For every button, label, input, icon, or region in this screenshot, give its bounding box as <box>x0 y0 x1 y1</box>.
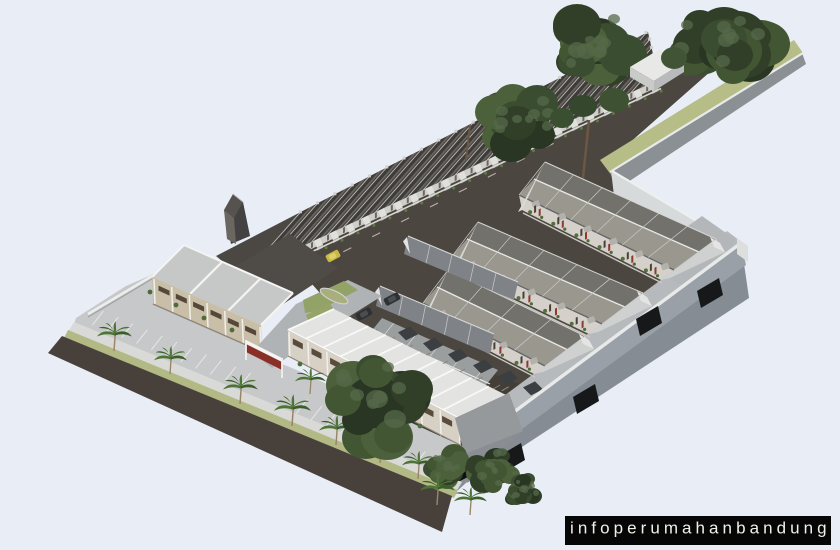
svg-text:infoperumahanbandung: infoperumahanbandung <box>570 519 831 538</box>
